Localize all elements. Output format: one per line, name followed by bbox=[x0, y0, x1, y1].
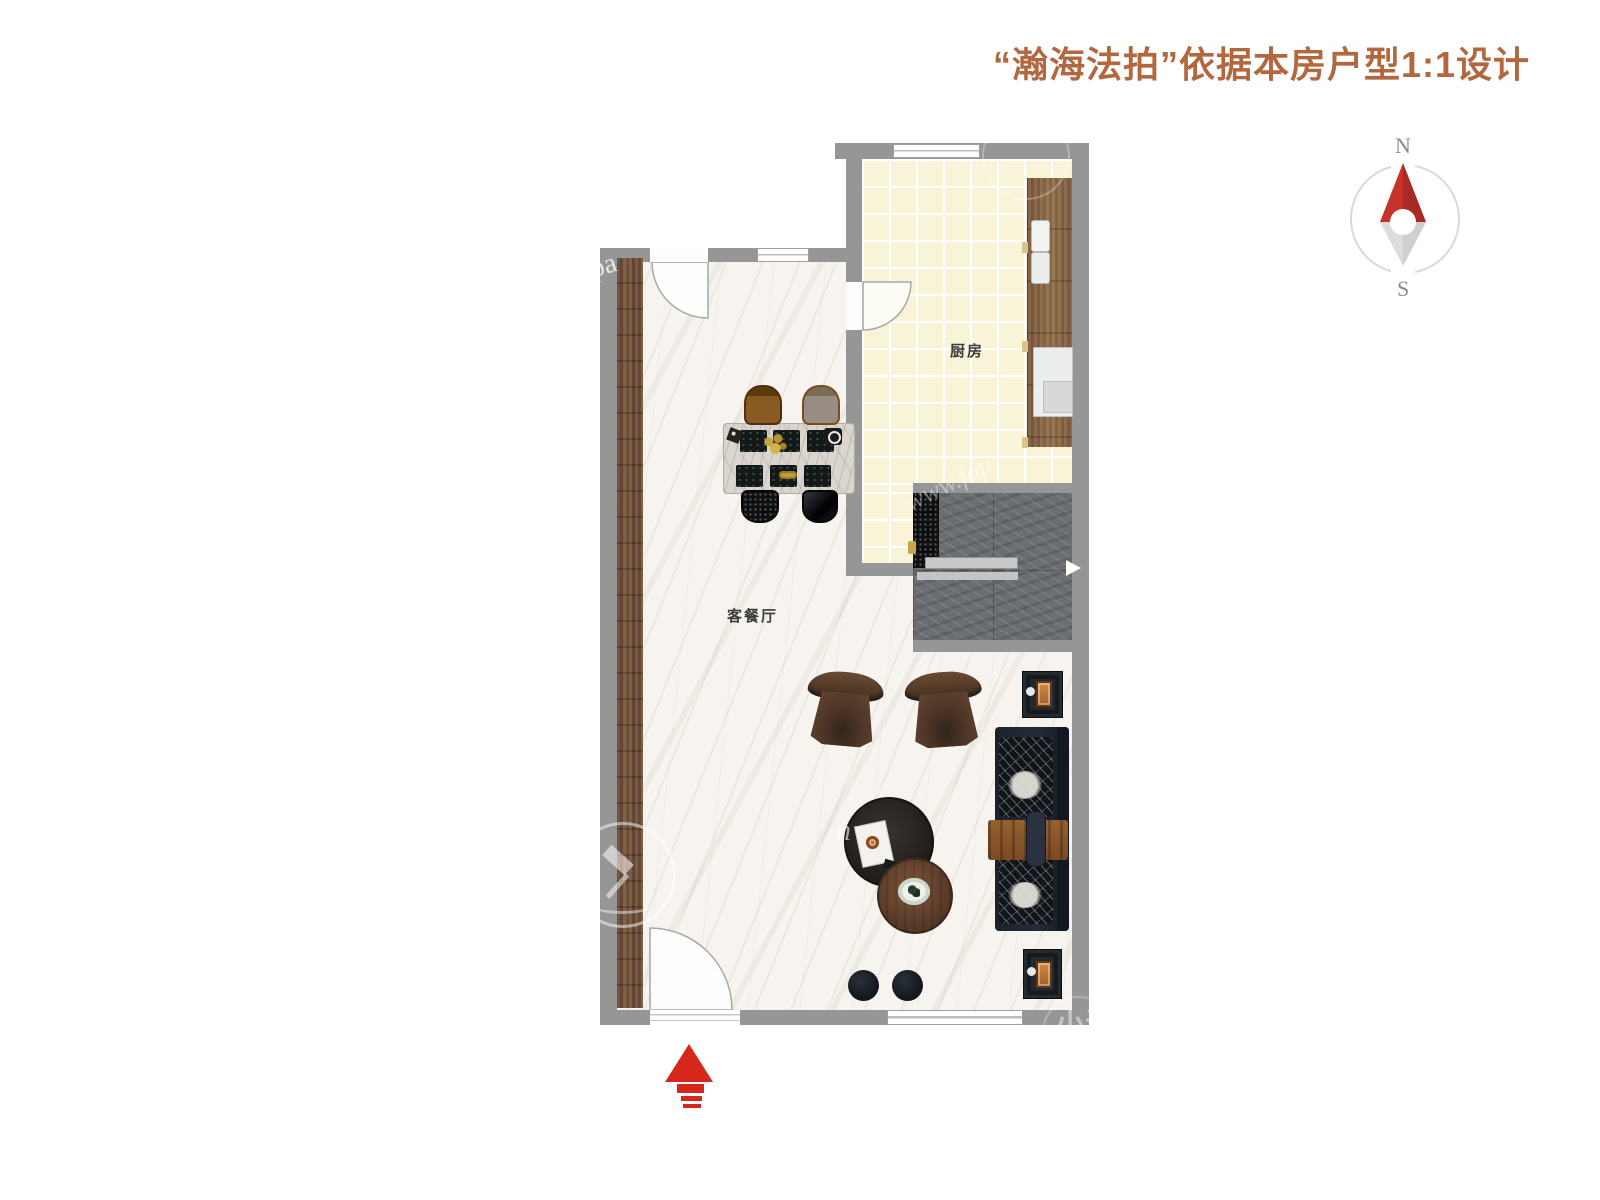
placemat bbox=[736, 465, 763, 487]
wall-stairs-top bbox=[913, 483, 1072, 493]
table-lamp-icon bbox=[1036, 681, 1052, 707]
counter-knob-1 bbox=[1022, 242, 1028, 253]
compass-south-label: S bbox=[1397, 276, 1409, 302]
table-centerpiece-flowers bbox=[761, 433, 787, 455]
table-black-round-item bbox=[824, 428, 842, 445]
wall-stairs-bottom bbox=[913, 640, 1072, 652]
coffee-table-orange-dish bbox=[866, 836, 879, 849]
wall-right bbox=[1072, 143, 1089, 1025]
stairs-handrail-lower bbox=[917, 572, 1018, 580]
lamp-side-table-top bbox=[1022, 671, 1063, 718]
entrance-arrow-dash-1 bbox=[681, 1096, 702, 1101]
kitchen-door-opening bbox=[846, 282, 863, 330]
kitchen-window bbox=[893, 144, 980, 158]
lamp-table-knob bbox=[1026, 687, 1035, 696]
lamp-table-knob bbox=[1027, 967, 1036, 976]
lamp-side-table-bottom bbox=[1023, 949, 1062, 999]
wall-kitchen-bottom bbox=[846, 563, 913, 576]
dining-chair-bottom-right bbox=[802, 490, 838, 523]
side-table-plate bbox=[898, 878, 930, 905]
dining-chair-top-left bbox=[744, 385, 782, 425]
kitchen-label: 厨房 bbox=[950, 340, 984, 361]
floor-plan-page: “瀚海法拍”依据本房户型1:1设计 N S bbox=[0, 0, 1600, 1200]
living-top-door-opening bbox=[650, 248, 708, 263]
armchair-seat bbox=[810, 690, 876, 748]
stairs-door-handle bbox=[908, 541, 916, 554]
plate-leaves bbox=[908, 885, 920, 897]
entrance-arrow-icon bbox=[665, 1044, 713, 1082]
dining-chair-bottom-left bbox=[741, 490, 779, 523]
kitchen-appliance-upper-a bbox=[1031, 220, 1050, 252]
entrance-arrow-stem bbox=[677, 1084, 704, 1093]
entrance-door-opening bbox=[650, 1010, 740, 1025]
floor-stool-left bbox=[848, 970, 879, 1001]
counter-knob-3 bbox=[1022, 437, 1028, 448]
floor-stool-right bbox=[892, 970, 923, 1001]
kitchen-appliance-upper-b bbox=[1031, 252, 1050, 284]
wood-wall-panel bbox=[617, 258, 643, 1008]
living-top-window bbox=[757, 248, 809, 262]
wall-left bbox=[600, 248, 617, 1025]
living-dining-label: 客餐厅 bbox=[727, 605, 778, 626]
counter-knob-2 bbox=[1022, 341, 1028, 352]
bottom-window bbox=[887, 1010, 1023, 1025]
round-item-ring bbox=[828, 431, 841, 444]
stairs-direction-arrow-icon bbox=[1066, 560, 1081, 576]
table-gold-dish bbox=[779, 471, 797, 479]
square-dot bbox=[731, 431, 736, 436]
armchair-left bbox=[803, 669, 885, 749]
wall-kitchen-left-upper bbox=[846, 159, 862, 282]
stairs-handrail-upper bbox=[925, 557, 1018, 569]
sofa-armrest-cushion bbox=[1026, 811, 1046, 867]
armchair-seat bbox=[912, 691, 979, 749]
table-lamp-icon bbox=[1036, 961, 1052, 988]
entrance-arrow-dash-2 bbox=[683, 1104, 701, 1108]
dining-chair-top-right bbox=[802, 385, 840, 425]
armchair-right bbox=[903, 669, 985, 749]
placemat bbox=[804, 465, 831, 487]
compass-needle-icon bbox=[1373, 160, 1433, 270]
page-title: “瀚海法拍”依据本房户型1:1设计 bbox=[993, 36, 1530, 88]
kitchen-sink-unit bbox=[1033, 347, 1073, 417]
kitchen-floor-strip bbox=[862, 492, 913, 563]
compass: N S bbox=[1335, 128, 1475, 308]
side-round-table bbox=[877, 858, 953, 934]
dining-table bbox=[723, 423, 855, 494]
compass-north-label: N bbox=[1395, 133, 1411, 159]
kitchen-sink-basin bbox=[1043, 381, 1073, 413]
sofa-pillow-top bbox=[999, 737, 1053, 817]
